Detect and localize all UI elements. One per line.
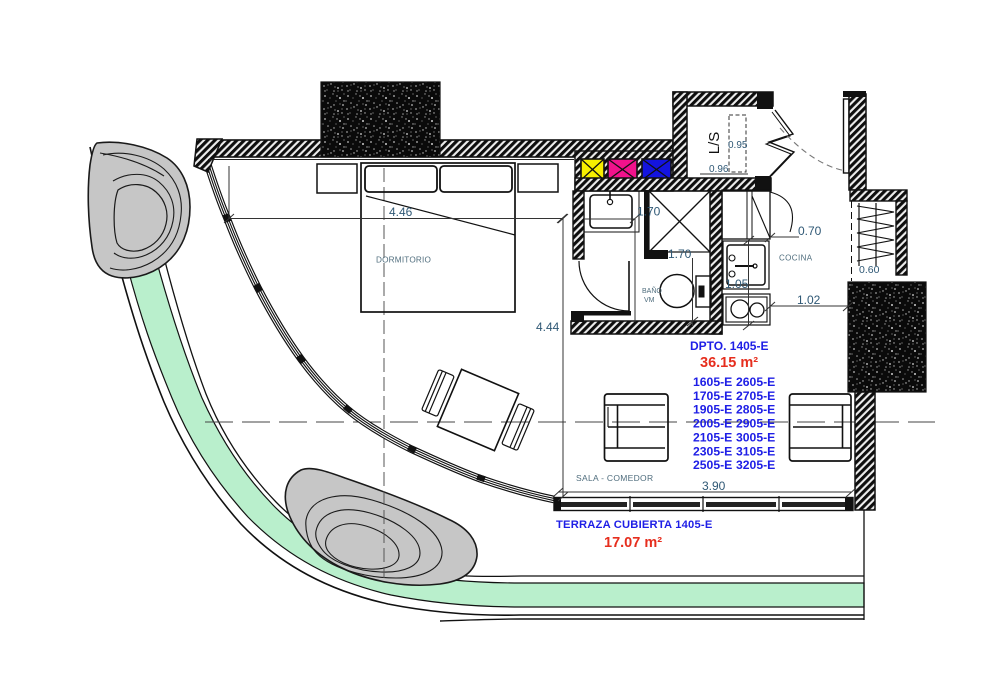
- svg-text:2305-E: 2305-E: [693, 445, 732, 459]
- svg-text:SALA - COMEDOR: SALA - COMEDOR: [576, 473, 653, 483]
- svg-text:0.96: 0.96: [709, 164, 729, 175]
- svg-text:36.15 m²: 36.15 m²: [700, 355, 758, 371]
- svg-text:4.46: 4.46: [389, 205, 413, 219]
- svg-text:DPTO. 1405-E: DPTO. 1405-E: [690, 339, 768, 353]
- svg-text:COCINA: COCINA: [779, 254, 813, 263]
- svg-text:4.44: 4.44: [536, 320, 560, 334]
- svg-text:2905-E: 2905-E: [736, 417, 775, 431]
- svg-text:3005-E: 3005-E: [736, 431, 775, 445]
- svg-text:3105-E: 3105-E: [736, 445, 775, 459]
- svg-text:2005-E: 2005-E: [693, 417, 732, 431]
- svg-text:3.90: 3.90: [702, 479, 726, 493]
- svg-text:1705-E: 1705-E: [693, 389, 732, 403]
- svg-text:1605-E: 1605-E: [693, 375, 732, 389]
- svg-text:BAÑO: BAÑO: [642, 286, 662, 295]
- svg-text:2805-E: 2805-E: [736, 403, 775, 417]
- svg-text:17.07 m²: 17.07 m²: [604, 535, 662, 551]
- svg-text:1.05: 1.05: [725, 277, 749, 291]
- svg-text:0.95: 0.95: [728, 140, 748, 151]
- svg-text:2605-E: 2605-E: [736, 375, 775, 389]
- svg-text:0.70: 0.70: [798, 224, 822, 238]
- svg-text:1.70: 1.70: [668, 247, 692, 261]
- svg-text:1.02: 1.02: [797, 293, 821, 307]
- svg-text:2505-E: 2505-E: [693, 458, 732, 472]
- svg-text:3205-E: 3205-E: [736, 458, 775, 472]
- svg-text:TERRAZA CUBIERTA 1405-E: TERRAZA CUBIERTA 1405-E: [556, 519, 713, 531]
- svg-text:DORMITORIO: DORMITORIO: [376, 256, 431, 265]
- svg-text:0.60: 0.60: [859, 264, 880, 276]
- svg-text:2705-E: 2705-E: [736, 389, 775, 403]
- svg-text:VM: VM: [644, 297, 655, 304]
- svg-text:2105-E: 2105-E: [693, 431, 732, 445]
- svg-text:1905-E: 1905-E: [693, 403, 732, 417]
- svg-text:L/S: L/S: [706, 132, 723, 155]
- svg-text:1.70: 1.70: [637, 205, 661, 219]
